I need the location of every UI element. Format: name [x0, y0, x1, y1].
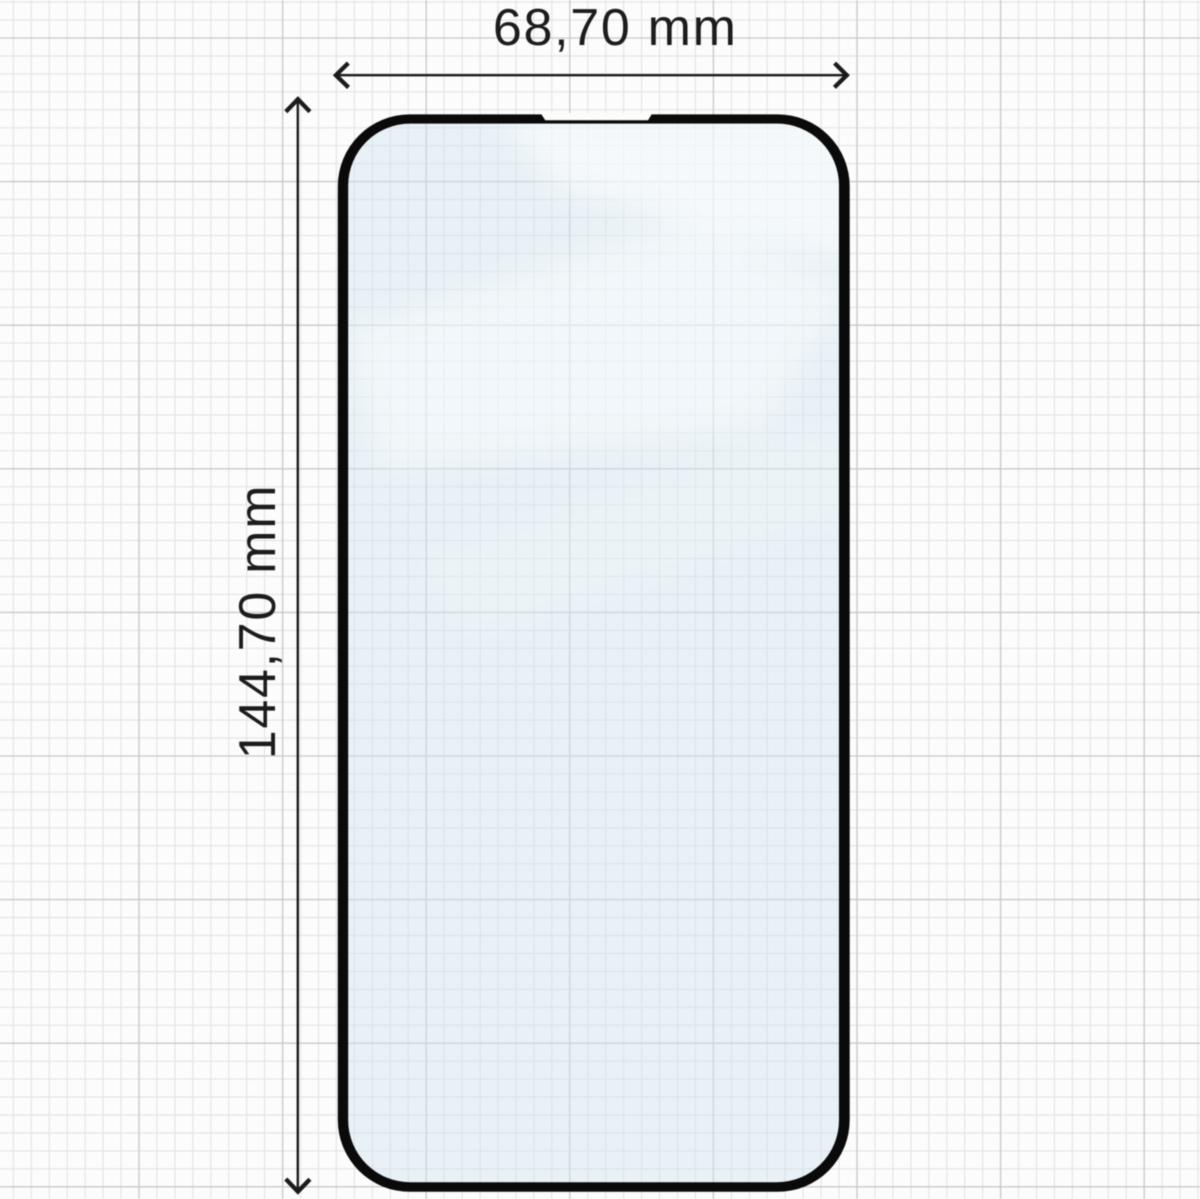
svg-text:68,70 mm: 68,70 mm	[493, 0, 738, 57]
svg-text:144,70 mm: 144,70 mm	[229, 484, 287, 759]
